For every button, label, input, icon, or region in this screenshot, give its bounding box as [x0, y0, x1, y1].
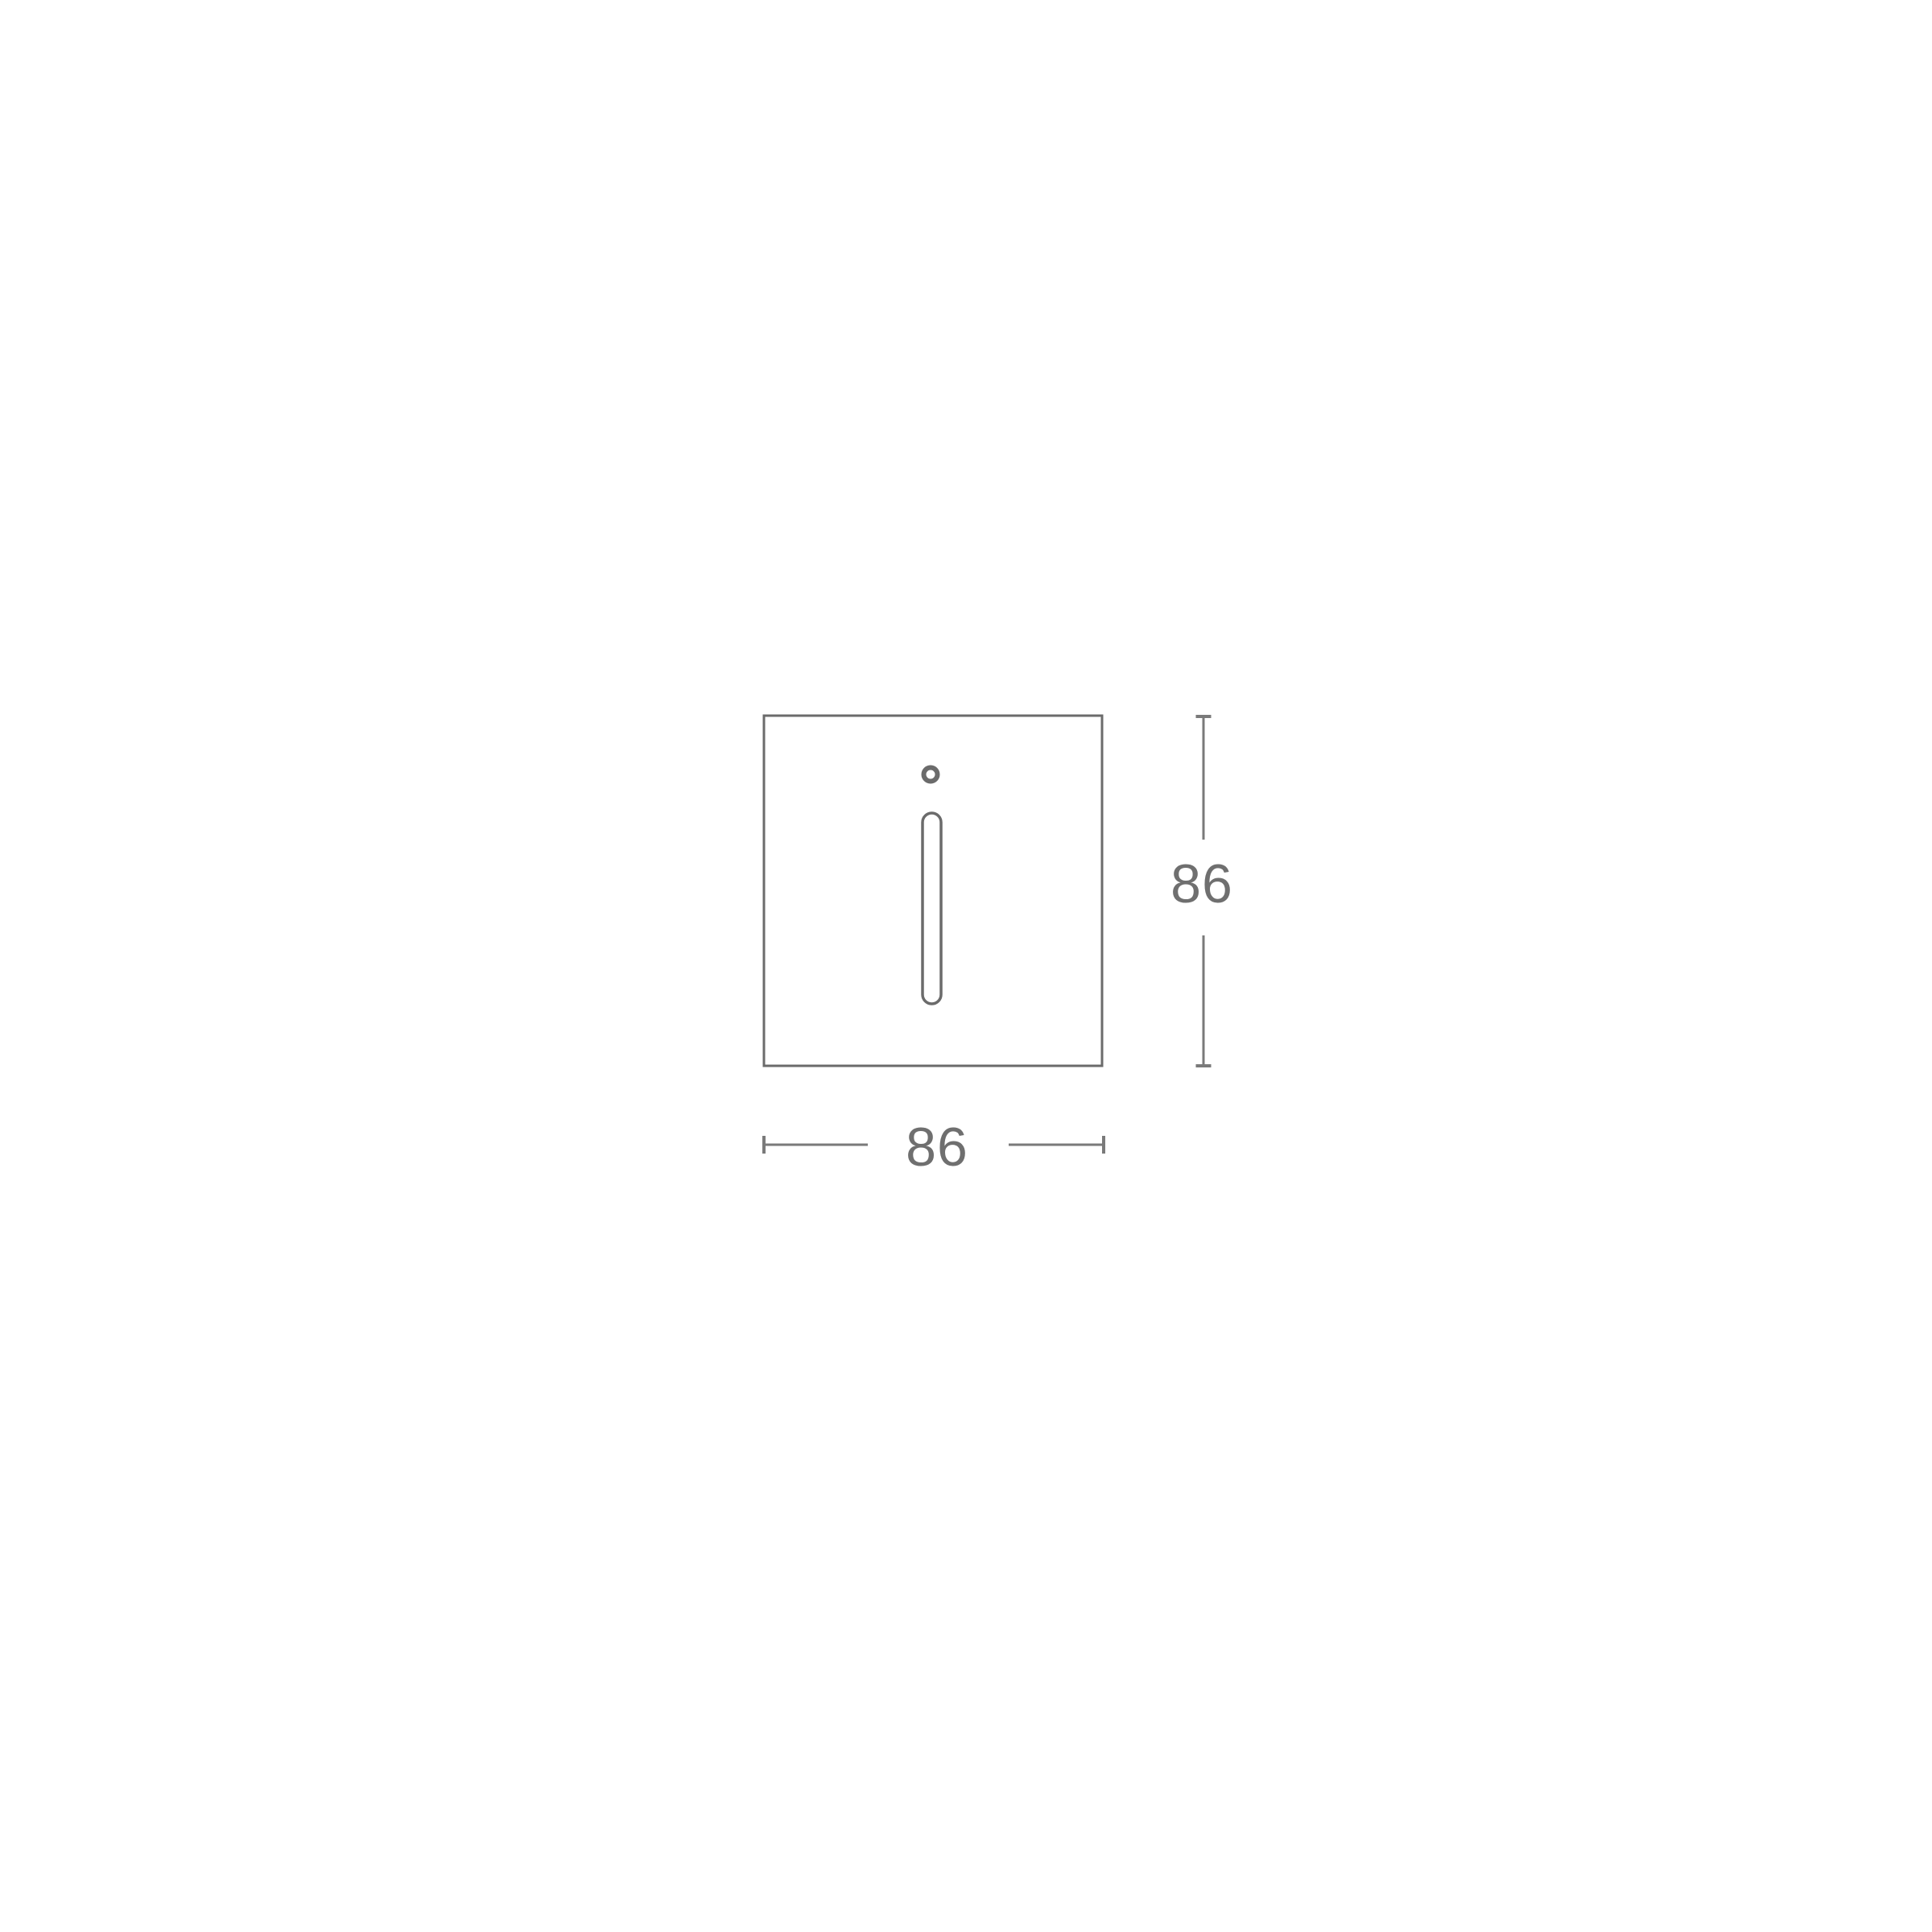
light-slot: [923, 813, 941, 1004]
dimension-drawing: 86 86: [0, 0, 1932, 1932]
width-dimension: 86: [764, 1117, 1104, 1178]
width-dimension-label: 86: [906, 1117, 968, 1178]
round-hole: [924, 768, 938, 782]
height-dimension: 86: [1170, 716, 1233, 1066]
drawing-canvas: 86 86: [0, 0, 1932, 1932]
height-dimension-label: 86: [1170, 853, 1233, 914]
